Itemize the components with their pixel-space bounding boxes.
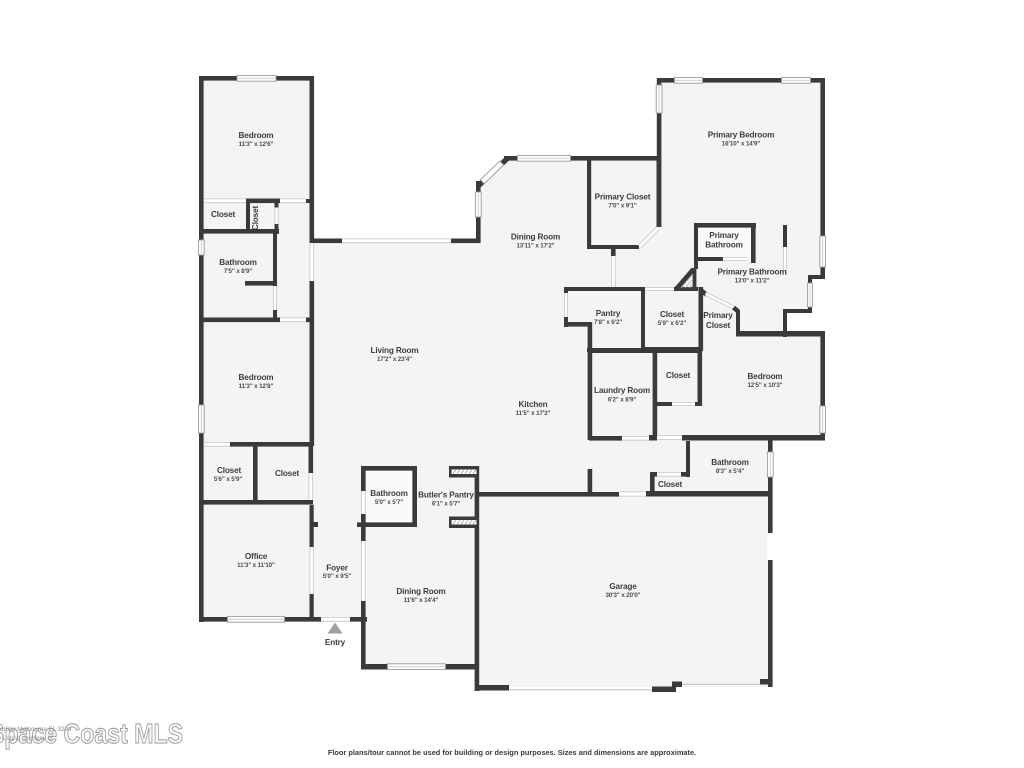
svg-text:Foyer: Foyer — [326, 564, 349, 573]
svg-text:16'10" x 14'9": 16'10" x 14'9" — [722, 141, 761, 148]
svg-text:Bathroom: Bathroom — [370, 489, 407, 498]
svg-text:Closet: Closet — [706, 321, 731, 330]
svg-text:5'6" x 5'9": 5'6" x 5'9" — [214, 476, 243, 483]
svg-text:30'3" x 20'0": 30'3" x 20'0" — [605, 592, 640, 599]
svg-text:6'1" x 5'7": 6'1" x 5'7" — [432, 501, 461, 508]
svg-text:Bedroom: Bedroom — [748, 372, 783, 381]
svg-text:Dining Room: Dining Room — [396, 587, 445, 596]
svg-text:Office: Office — [245, 552, 268, 561]
svg-text:Bedroom: Bedroom — [239, 373, 274, 382]
svg-text:d(S)a Melbourne FL 3294: d(S)a Melbourne FL 3294 — [0, 726, 72, 733]
svg-text:Space Coast MLS: Space Coast MLS — [0, 718, 183, 749]
svg-text:5'0" x 5'7": 5'0" x 5'7" — [375, 499, 404, 506]
svg-text:Closet: Closet — [666, 371, 691, 380]
svg-text:Closet: Closet — [275, 469, 300, 478]
svg-text:Primary: Primary — [703, 311, 733, 320]
svg-text:6'2" x 8'9": 6'2" x 8'9" — [608, 397, 637, 404]
svg-text:Bathroom: Bathroom — [705, 241, 742, 250]
svg-text:Living Room: Living Room — [371, 346, 419, 355]
svg-text:Closet: Closet — [251, 206, 260, 231]
svg-text:Garage: Garage — [609, 582, 637, 591]
svg-text:Pantry: Pantry — [596, 309, 621, 318]
svg-text:Closet: Closet — [658, 480, 683, 489]
svg-text:11'3" x 12'6": 11'3" x 12'6" — [239, 141, 274, 148]
svg-text:8'3" x 5'4": 8'3" x 5'4" — [716, 468, 745, 475]
svg-text:12'5" x 10'3": 12'5" x 10'3" — [747, 382, 782, 389]
svg-text:11'6" x 14'4": 11'6" x 14'4" — [404, 597, 439, 604]
svg-text:Listing courtesy of: Listing courtesy of — [2, 735, 53, 742]
svg-text:11'3" x 12'8": 11'3" x 12'8" — [239, 383, 274, 390]
svg-text:Bedroom: Bedroom — [239, 131, 274, 140]
svg-text:Kitchen: Kitchen — [519, 400, 548, 409]
svg-text:Primary Bedroom: Primary Bedroom — [708, 131, 774, 140]
svg-text:Primary: Primary — [709, 231, 739, 240]
svg-text:17'2" x 23'4": 17'2" x 23'4" — [377, 356, 412, 363]
svg-text:Dining Room: Dining Room — [511, 233, 560, 242]
svg-text:Bathroom: Bathroom — [711, 458, 748, 467]
svg-text:7'8" x 6'2": 7'8" x 6'2" — [594, 319, 623, 326]
svg-text:Closet: Closet — [217, 466, 242, 475]
svg-text:Closet: Closet — [211, 210, 236, 219]
svg-text:Floor plans/tour cannot be use: Floor plans/tour cannot be used for buil… — [328, 748, 696, 757]
svg-text:Bathroom: Bathroom — [219, 258, 256, 267]
svg-text:Primary Closet: Primary Closet — [595, 193, 651, 202]
svg-text:13'0" x 11'2": 13'0" x 11'2" — [735, 278, 770, 285]
svg-text:11'3" x 11'10": 11'3" x 11'10" — [237, 562, 275, 569]
svg-text:Laundry Room: Laundry Room — [594, 386, 650, 395]
svg-text:13'11" x 17'2": 13'11" x 17'2" — [516, 243, 554, 250]
svg-text:Primary Bathroom: Primary Bathroom — [717, 268, 786, 277]
svg-text:5'9" x 6'2": 5'9" x 6'2" — [658, 320, 687, 327]
svg-text:7'0" x 9'1": 7'0" x 9'1" — [608, 203, 637, 210]
svg-text:11'5" x 17'3": 11'5" x 17'3" — [516, 410, 551, 417]
svg-text:Entry: Entry — [325, 638, 346, 647]
svg-text:Butler's Pantry: Butler's Pantry — [418, 491, 474, 500]
svg-text:7'5" x 8'9": 7'5" x 8'9" — [224, 268, 253, 275]
svg-text:5'0" x 9'5": 5'0" x 9'5" — [323, 573, 352, 580]
svg-text:Closet: Closet — [660, 310, 685, 319]
